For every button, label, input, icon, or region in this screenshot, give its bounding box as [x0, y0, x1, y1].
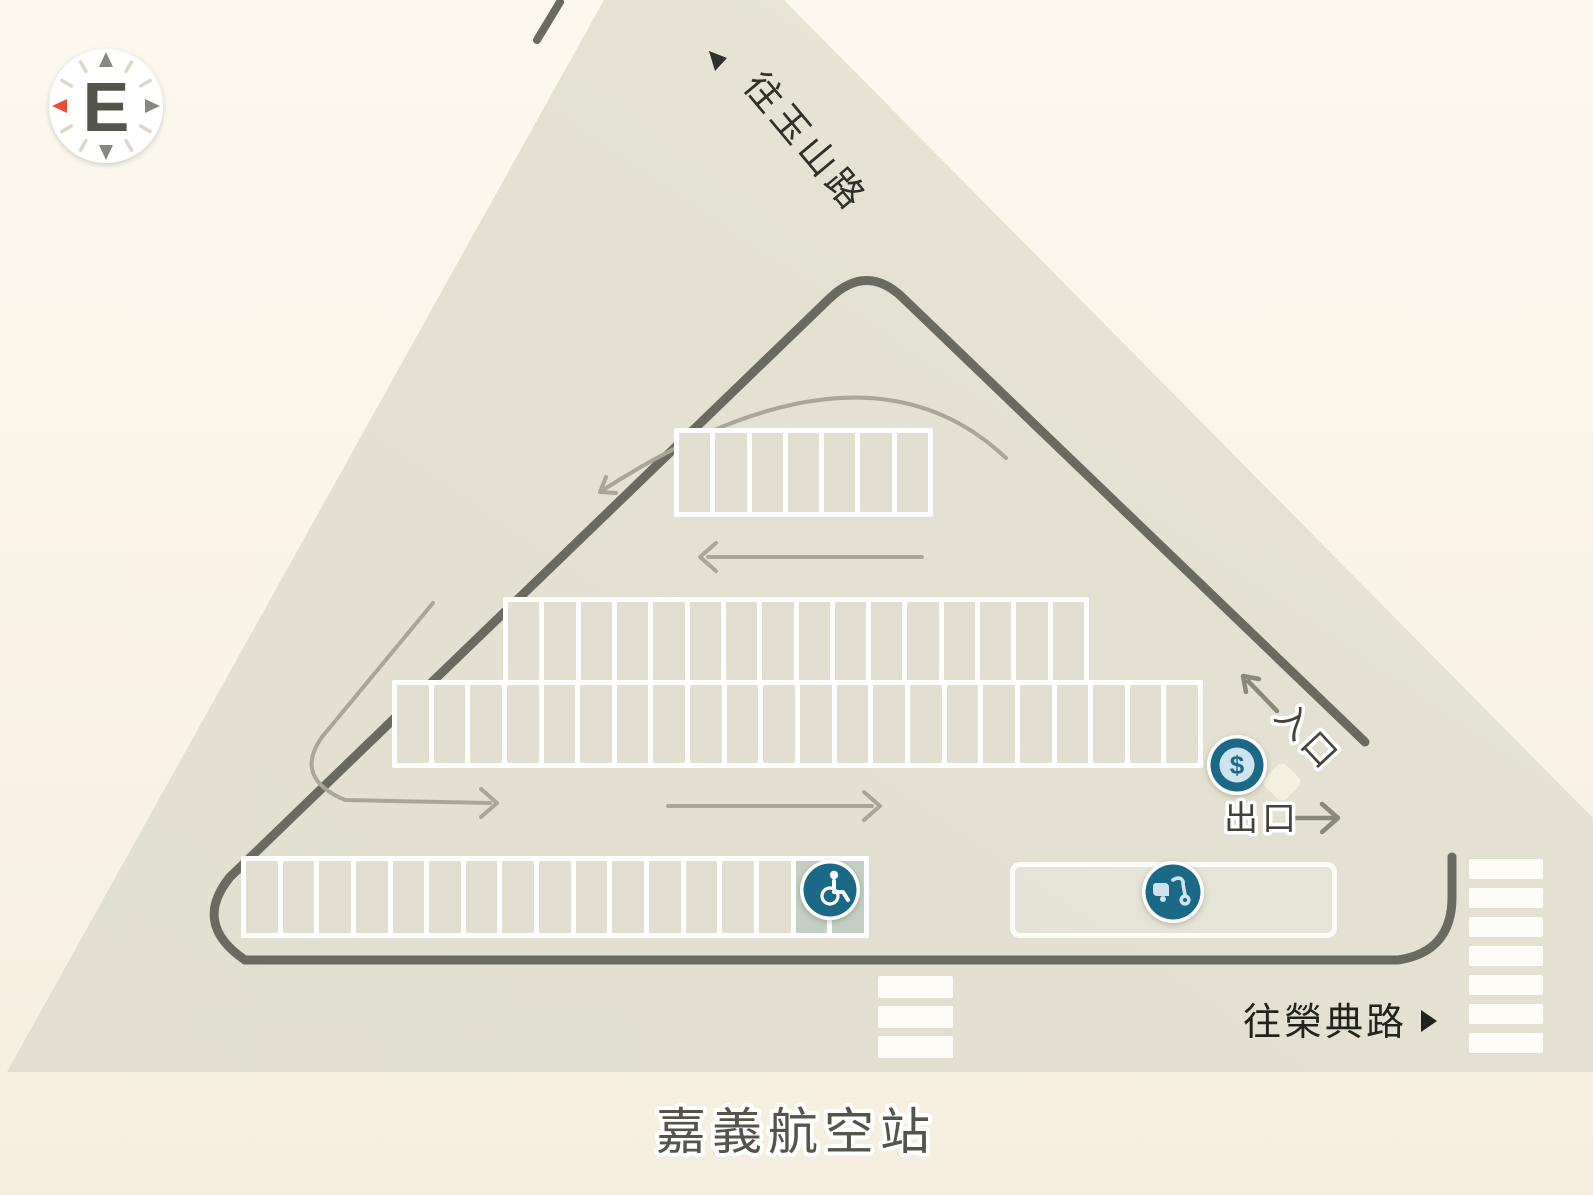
parking-stall [653, 602, 684, 680]
parking-stall [983, 685, 1015, 763]
crosswalk-right-bar [1469, 946, 1543, 966]
parking-stall [763, 685, 795, 763]
parking-stall [722, 861, 754, 933]
crosswalk-right-bar [1469, 888, 1543, 908]
parking-stall [1130, 685, 1162, 763]
parking-stall [397, 685, 429, 763]
parking-stall [679, 433, 710, 512]
parking-stall [759, 861, 791, 933]
parking-stall [544, 602, 575, 680]
parking-row-bottom [241, 856, 869, 938]
parking-stall [1053, 602, 1084, 680]
parking-stall [800, 685, 832, 763]
parking-stall [1057, 685, 1089, 763]
parking-stall [690, 602, 721, 680]
parking-stall [653, 685, 685, 763]
parking-stall [860, 433, 891, 512]
parking-stall [1016, 602, 1047, 680]
parking-stall [470, 685, 502, 763]
parking-stall [727, 685, 759, 763]
parking-row-middle-upper [503, 597, 1089, 685]
parking-stall [502, 861, 534, 933]
parking-stall [617, 602, 648, 680]
parking-stall [799, 602, 830, 680]
parking-stall [1020, 685, 1052, 763]
parking-stall [1166, 685, 1198, 763]
parking-stall [612, 861, 644, 933]
crosswalk-right-bar [1469, 1033, 1543, 1053]
parking-stall [507, 685, 539, 763]
parking-row-top [674, 428, 933, 517]
parking-stall [246, 861, 278, 933]
parking-stall [508, 602, 539, 680]
parking-stall [466, 861, 498, 933]
parking-stall [910, 685, 942, 763]
crosswalk-bottom-bar [878, 976, 953, 998]
crosswalk-bottom-bar [878, 1036, 953, 1058]
parking-stall [726, 602, 757, 680]
parking-stall [393, 861, 425, 933]
parking-stall [907, 602, 938, 680]
parking-stall [837, 685, 869, 763]
parking-stall [980, 602, 1011, 680]
parking-stall [835, 602, 866, 680]
parking-lot-map: 往玉山路 入口 出口 往榮典路 嘉義航空站 [0, 0, 1593, 1195]
crosswalk-right-bar [1469, 859, 1543, 879]
parking-stall [788, 433, 819, 512]
parking-stall [715, 433, 746, 512]
parking-stall [429, 861, 461, 933]
parking-stall [434, 685, 466, 763]
parking-stall [617, 685, 649, 763]
parking-stall [544, 685, 576, 763]
accessible-parking-stall [796, 861, 828, 933]
motorcycle-parking-area [1010, 862, 1337, 938]
parking-stall [283, 861, 315, 933]
parking-stall [1093, 685, 1125, 763]
parking-stall [824, 433, 855, 512]
parking-rows-layer [0, 0, 1593, 1195]
accessible-parking-stall [832, 861, 864, 933]
crosswalk-bottom-bar [878, 1006, 953, 1028]
parking-stall [947, 685, 979, 763]
parking-stall [576, 861, 608, 933]
parking-stall [897, 433, 928, 512]
parking-stall [944, 602, 975, 680]
parking-stall [871, 602, 902, 680]
parking-stall [690, 685, 722, 763]
crosswalk-right-bar [1469, 1004, 1543, 1024]
parking-stall [580, 685, 612, 763]
parking-stall [356, 861, 388, 933]
crosswalk-right-bar [1469, 917, 1543, 937]
parking-row-middle-lower [392, 680, 1203, 768]
parking-stall [873, 685, 905, 763]
parking-stall [539, 861, 571, 933]
parking-stall [649, 861, 681, 933]
crosswalk-right-bar [1469, 975, 1543, 995]
parking-stall [319, 861, 351, 933]
parking-stall [686, 861, 718, 933]
parking-stall [762, 602, 793, 680]
parking-stall [581, 602, 612, 680]
parking-stall [752, 433, 783, 512]
